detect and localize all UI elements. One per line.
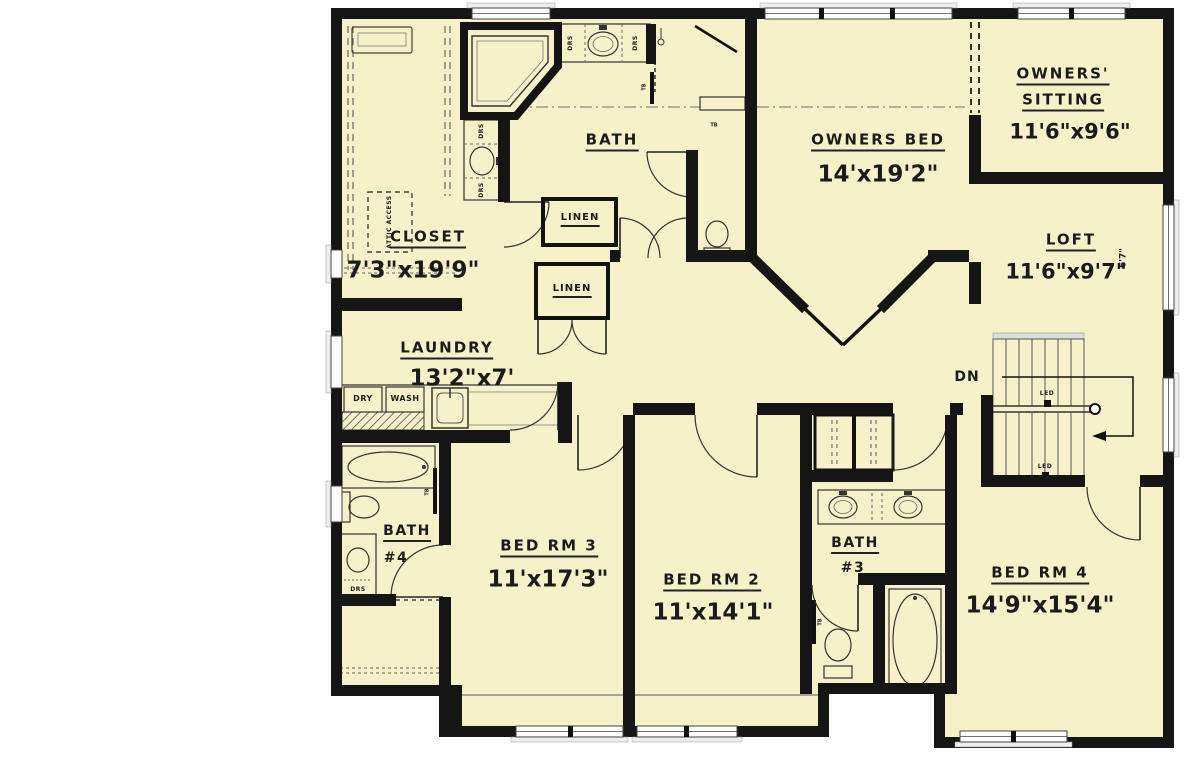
towel-bar-label-4: TB <box>819 618 824 625</box>
room-number-bath3: #3 <box>841 561 865 575</box>
drawers-label-3: DRS <box>479 123 485 138</box>
room-label-bath3: BATH <box>831 536 879 554</box>
room-label-bed2: BED RM 2 <box>663 573 761 592</box>
attic-access-label: ATTIC ACCESS <box>387 195 393 248</box>
linen-closet-label-1: LINEN <box>561 213 600 227</box>
room-dims-bed3: 11'x17'3" <box>488 569 609 592</box>
room-label-laundry: LAUNDRY <box>400 341 493 360</box>
room-dims-owners-bed: 14'x19'2" <box>818 164 939 187</box>
room-label-loft: LOFT <box>1046 233 1096 252</box>
room-dims-loft: 11'6"x9'7" <box>1005 262 1126 283</box>
drawers-label-1: DRS <box>568 35 574 50</box>
room-label-owners-sitting-1: OWNERS' <box>1016 67 1109 86</box>
floor-plan-page: BATH OWNERS BED 14'x19'2" OWNERS' SITTIN… <box>0 0 1200 768</box>
towel-bar-label-1: TB <box>643 83 648 90</box>
room-dims-bed2: 11'x14'1" <box>653 602 774 625</box>
room-dims-bed4: 14'9"x15'4" <box>966 595 1115 618</box>
washer-label: WASH <box>390 395 419 403</box>
stairs-down-label: DN <box>954 370 979 384</box>
room-label-bath4: BATH <box>383 524 431 542</box>
room-label-owners-bed: OWNERS BED <box>811 133 945 152</box>
drawers-label-5: DRS <box>350 587 365 593</box>
stairs-ledge-label-2: LED <box>1038 464 1052 470</box>
floor-plan-drawing <box>0 0 1200 768</box>
room-label-owner-bath: BATH <box>586 133 639 152</box>
room-dims-owners-sitting: 11'6"x9'6" <box>1009 122 1130 143</box>
room-number-bath4: #4 <box>384 551 408 565</box>
loft-side-note: 6'7" <box>1120 248 1129 268</box>
stairs-ledge-label-1: LED <box>1040 391 1054 397</box>
towel-bar-label-2: TB <box>710 124 717 129</box>
room-label-bed3: BED RM 3 <box>500 539 598 558</box>
room-label-bed4: BED RM 4 <box>991 566 1089 585</box>
towel-bar-label-3: TB <box>426 488 431 495</box>
drawers-label-2: DRS <box>633 35 639 50</box>
dryer-label: DRY <box>353 395 373 403</box>
drawers-label-4: DRS <box>479 182 485 197</box>
room-label-closet: CLOSET <box>390 230 466 249</box>
room-label-owners-sitting-2: SITTING <box>1022 93 1104 112</box>
linen-closet-label-2: LINEN <box>553 284 592 298</box>
room-dims-closet: 7'3"x19'9" <box>347 260 480 283</box>
room-dims-laundry: 13'2"x7' <box>410 368 515 391</box>
